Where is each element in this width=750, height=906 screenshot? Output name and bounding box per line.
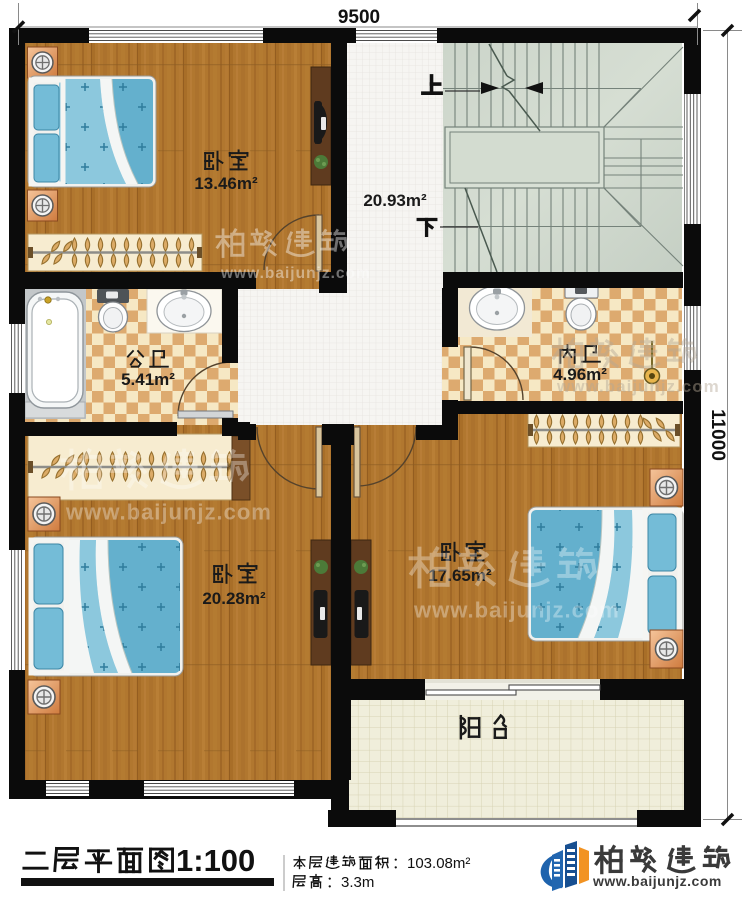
svg-text:20.28m²: 20.28m² [202,589,266,608]
svg-text:9500: 9500 [338,7,380,28]
svg-text:20.93m²: 20.93m² [363,191,427,210]
svg-text:www.baijunjz.com: www.baijunjz.com [556,377,720,396]
svg-text:：3.3m: ：3.3m [326,874,374,891]
svg-text:www.baijunjz.com: www.baijunjz.com [413,597,620,622]
svg-text:5.41m²: 5.41m² [121,370,175,389]
svg-text:：103.08m²: ：103.08m² [392,855,470,872]
svg-text:1:100: 1:100 [176,843,255,878]
svg-text:www.baijunjz.com: www.baijunjz.com [592,873,722,889]
svg-text:www.baijunjz.com: www.baijunjz.com [220,265,371,282]
svg-text:11000: 11000 [707,409,728,461]
svg-text:www.baijunjz.com: www.baijunjz.com [65,499,272,524]
svg-text:13.46m²: 13.46m² [194,174,258,193]
